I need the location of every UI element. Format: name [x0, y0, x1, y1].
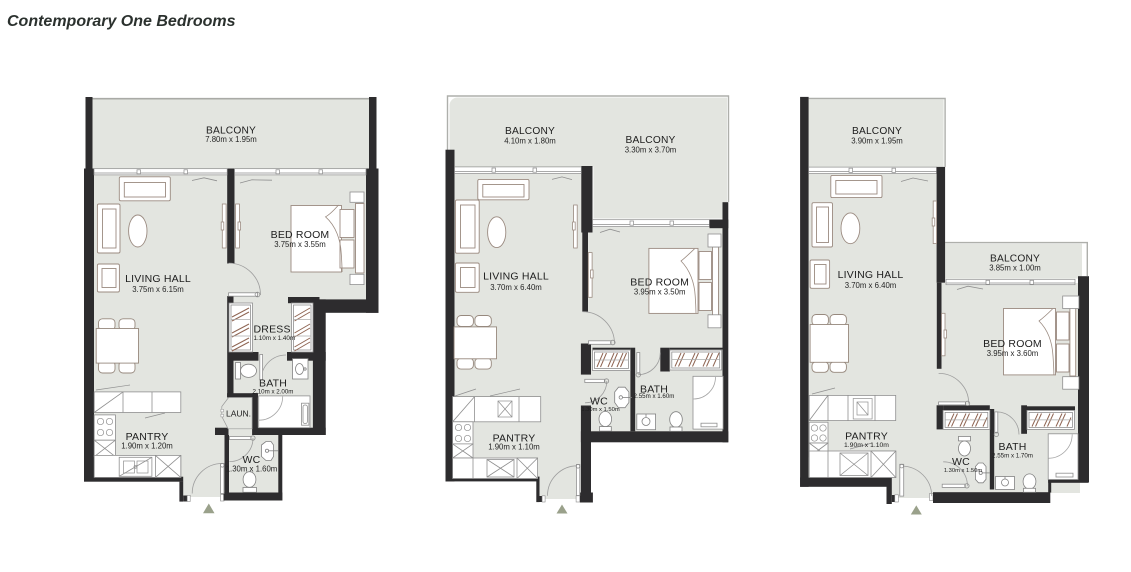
svg-text:1.30m x 1.60m: 1.30m x 1.60m [226, 465, 278, 474]
svg-text:1.90m x 1.10m: 1.90m x 1.10m [488, 443, 540, 452]
svg-text:3.95m x 3.60m: 3.95m x 3.60m [987, 349, 1039, 358]
svg-text:PANTRY: PANTRY [845, 431, 888, 443]
svg-text:BALCONY: BALCONY [852, 126, 902, 137]
svg-text:1.30m x 1.50m: 1.30m x 1.50m [944, 468, 983, 474]
svg-text:WC: WC [952, 456, 970, 468]
svg-text:LIVING HALL: LIVING HALL [838, 269, 904, 281]
svg-text:3.70m x 6.40m: 3.70m x 6.40m [845, 281, 897, 290]
svg-text:BALCONY: BALCONY [505, 126, 555, 137]
svg-text:7.80m x 1.95m: 7.80m x 1.95m [205, 135, 257, 144]
svg-text:2.10m x 2.00m: 2.10m x 2.00m [253, 389, 294, 396]
svg-text:BALCONY: BALCONY [625, 135, 675, 146]
svg-text:DRESS: DRESS [254, 324, 291, 336]
svg-text:BATH: BATH [998, 441, 1026, 453]
svg-text:3.75m x 3.55m: 3.75m x 3.55m [274, 240, 326, 249]
svg-text:3.30m x 3.70m: 3.30m x 3.70m [625, 146, 677, 155]
svg-text:WC: WC [590, 396, 608, 408]
svg-text:4.10m x 1.80m: 4.10m x 1.80m [504, 137, 556, 146]
svg-text:3.75m x 6.15m: 3.75m x 6.15m [132, 285, 184, 294]
svg-text:1.90m x 1.10m: 1.90m x 1.10m [844, 442, 889, 449]
svg-text:1.10m x 1.40m: 1.10m x 1.40m [254, 335, 296, 342]
svg-text:3.85m x 1.00m: 3.85m x 1.00m [989, 264, 1041, 273]
svg-text:2.55m x 1.60m: 2.55m x 1.60m [634, 393, 675, 400]
svg-text:1.30m x 1.50m: 1.30m x 1.50m [581, 407, 620, 413]
svg-text:LAUN.: LAUN. [226, 409, 251, 419]
svg-text:2.55m x 1.70m: 2.55m x 1.70m [992, 453, 1033, 460]
svg-text:3.90m x 1.95m: 3.90m x 1.95m [851, 137, 903, 146]
svg-text:3.70m x 6.40m: 3.70m x 6.40m [490, 283, 542, 292]
svg-text:Contemporary One Bedrooms: Contemporary One Bedrooms [7, 13, 236, 30]
svg-text:LIVING HALL: LIVING HALL [483, 271, 549, 283]
svg-text:LIVING HALL: LIVING HALL [125, 273, 191, 285]
svg-text:3.95m x 3.50m: 3.95m x 3.50m [634, 288, 686, 297]
svg-text:1.90m x 1.20m: 1.90m x 1.20m [121, 442, 173, 451]
